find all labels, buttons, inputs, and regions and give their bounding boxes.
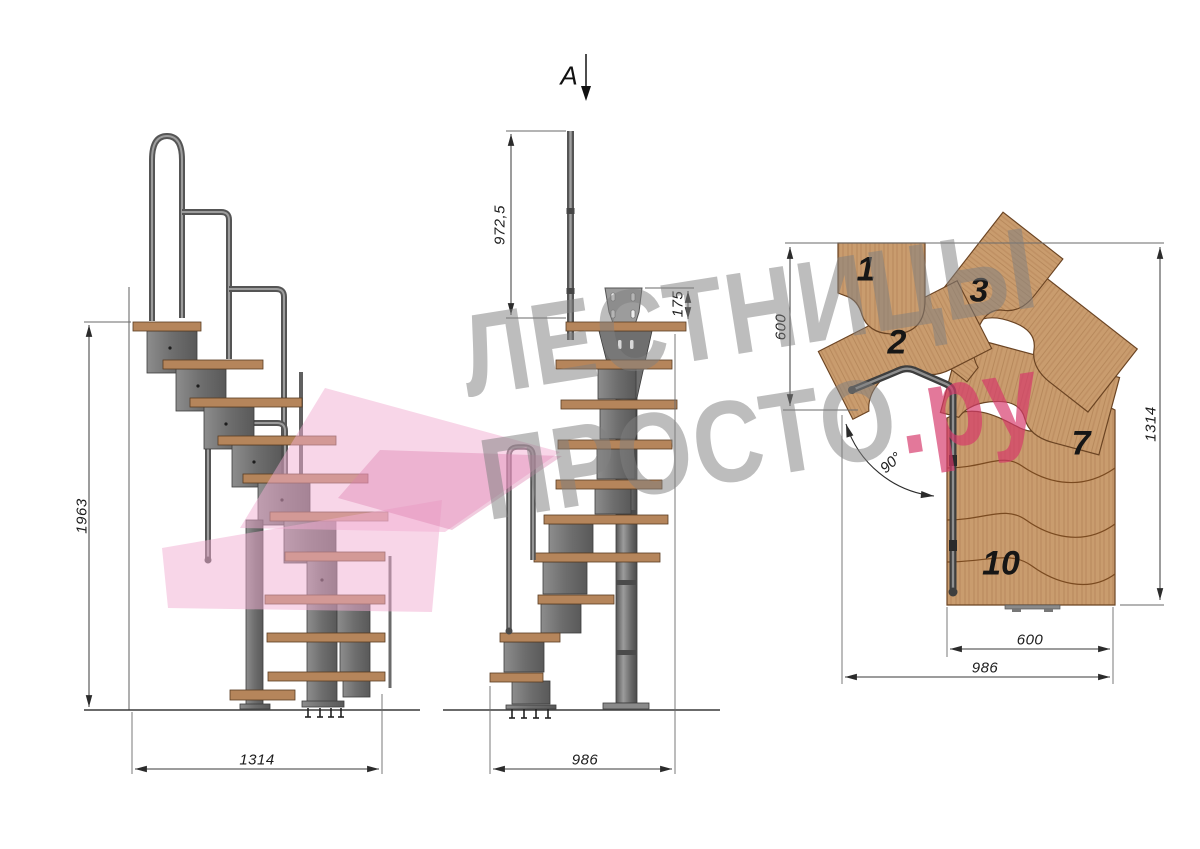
dim-front-plate-offset: 175 <box>670 291 687 318</box>
front-view <box>443 54 720 774</box>
dim-side-total-height: 1963 <box>74 498 91 533</box>
section-a-label: A <box>560 61 577 92</box>
dim-plan-step-width: 600 <box>1017 632 1044 649</box>
section-arrow-icon <box>581 54 591 101</box>
plan-step-number-1: 1 <box>857 251 876 290</box>
dim-plan-landing-depth: 600 <box>773 314 790 341</box>
side-base-plate <box>302 701 344 707</box>
dim-front-railing-height: 972,5 <box>492 205 509 245</box>
dim-side-total-length: 1314 <box>239 752 274 769</box>
plan-column-base <box>1005 605 1060 612</box>
dim-plan-total-width: 986 <box>972 660 999 677</box>
front-treads <box>490 322 686 682</box>
dim-plan-total-length: 1314 <box>1143 406 1160 441</box>
staircase-technical-drawing: A 1963 1314 972,5 175 986 600 1314 600 9… <box>0 0 1200 849</box>
front-base-plate <box>603 703 649 709</box>
plan-step-number-7: 7 <box>1072 425 1091 464</box>
plan-step-number-3: 3 <box>970 272 989 311</box>
plan-step-1 <box>838 243 925 334</box>
dim-front-total-width: 986 <box>572 752 599 769</box>
drawing-linework <box>0 0 1200 849</box>
plan-step-number-2: 2 <box>888 324 907 363</box>
plan-step-number-10: 10 <box>982 545 1020 584</box>
front-rail-post <box>567 131 575 340</box>
